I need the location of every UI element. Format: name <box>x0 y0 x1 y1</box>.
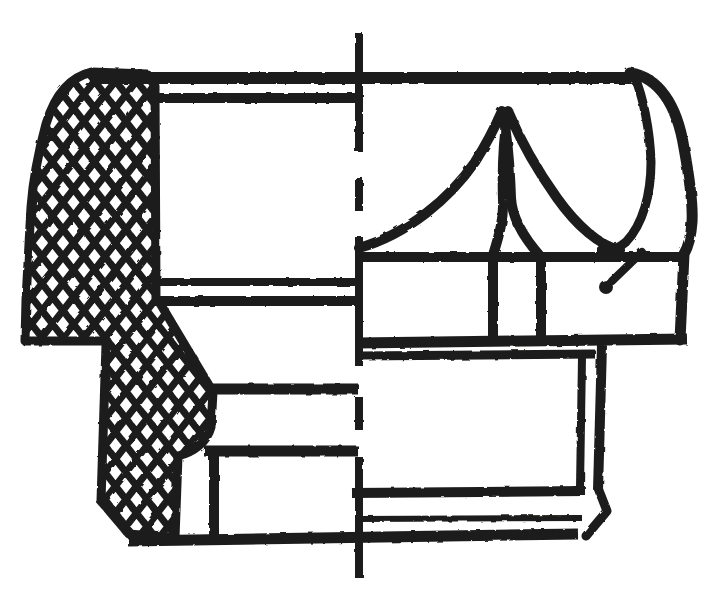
skirt-band-bottom-line <box>357 339 687 343</box>
boss-top-line <box>359 354 595 356</box>
base-flange-top-line <box>352 491 585 493</box>
pointer-dot <box>599 280 613 294</box>
base-bottom-line <box>128 534 578 541</box>
flute-curve-left <box>359 111 541 340</box>
boss-inner-contour-line <box>580 357 582 488</box>
base-flange-mid-line <box>359 518 582 519</box>
scallop-hook-curve <box>601 75 651 250</box>
base-flange-corner-chamfer <box>586 488 607 536</box>
drawing-canvas <box>0 0 720 603</box>
boss-outer-edge <box>598 345 602 490</box>
right-shoulder-silhouette <box>630 73 692 340</box>
technical-drawing-figure <box>0 0 720 603</box>
